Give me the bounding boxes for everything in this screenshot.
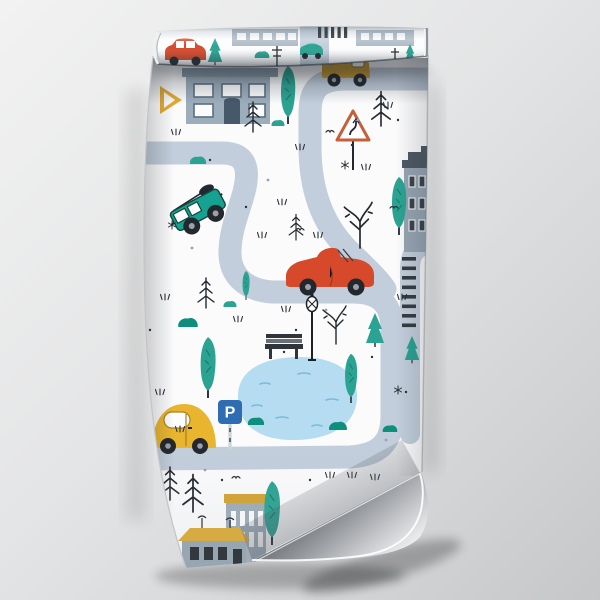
wallpaper-roll xyxy=(152,24,432,78)
wallpaper-mockup: P xyxy=(0,0,600,600)
mockup-scene: P xyxy=(0,0,600,600)
